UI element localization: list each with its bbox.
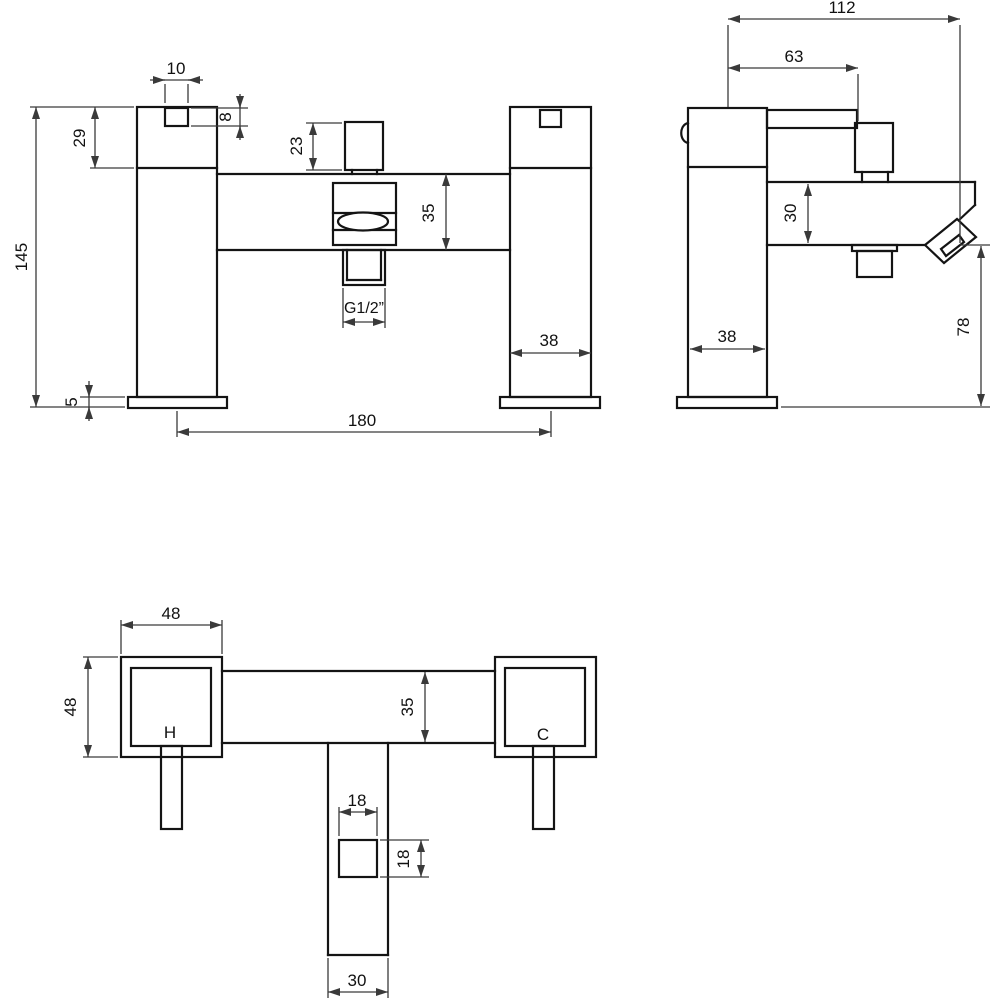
plan-view: H C 48 48 35 bbox=[61, 604, 596, 998]
side-handle-grip bbox=[855, 123, 893, 172]
front-left-pillar bbox=[137, 107, 217, 397]
dim-label-base-plate-height: 5 bbox=[62, 397, 81, 406]
dim-body-height: 35 bbox=[419, 174, 446, 250]
dim-label-body-depth-plan: 35 bbox=[398, 698, 417, 717]
dim-body-depth-side: 30 bbox=[781, 184, 808, 243]
side-view: 112 63 30 38 78 bbox=[677, 0, 990, 408]
dim-button-width: 10 bbox=[150, 59, 203, 103]
dim-label-button-height: 8 bbox=[216, 112, 235, 121]
front-left-handle-button bbox=[165, 108, 188, 126]
front-right-base-flange bbox=[500, 397, 600, 408]
dim-body-depth-plan: 35 bbox=[398, 672, 425, 742]
front-left-base-flange bbox=[128, 397, 227, 408]
dim-spout-block-width: 30 bbox=[328, 958, 388, 998]
dim-label-body-height: 35 bbox=[419, 204, 438, 223]
dim-label-tap-centres: 180 bbox=[348, 411, 376, 430]
dim-pillar-depth: 38 bbox=[690, 327, 765, 349]
front-view: 10 8 29 145 5 bbox=[12, 59, 600, 437]
dim-label-handle-depth: 48 bbox=[61, 698, 80, 717]
technical-drawing: 10 8 29 145 5 bbox=[0, 0, 1000, 1000]
plan-hot-handle-outer bbox=[121, 657, 222, 757]
technical-drawing-page: 10 8 29 145 5 bbox=[0, 0, 1000, 1000]
dim-label-body-depth-side: 30 bbox=[781, 204, 800, 223]
dim-handle-width: 48 bbox=[121, 604, 222, 654]
front-diverter-lever bbox=[345, 122, 383, 170]
plan-cold-label: C bbox=[537, 725, 549, 744]
plan-hot-lever bbox=[161, 746, 182, 829]
dim-label-overall-reach: 112 bbox=[828, 0, 855, 17]
dim-label-handle-width: 48 bbox=[162, 604, 181, 623]
dim-handle-depth: 48 bbox=[61, 657, 118, 757]
dim-label-handle-reach: 63 bbox=[785, 47, 804, 66]
dim-spout-outlet-height: 78 bbox=[781, 245, 990, 407]
side-handle-lever bbox=[767, 110, 857, 128]
dim-button-height: 8 bbox=[191, 94, 248, 140]
side-base-flange bbox=[677, 397, 777, 408]
dim-outlet-width: 18 bbox=[339, 791, 377, 836]
dim-label-pillar-width: 38 bbox=[540, 331, 559, 350]
front-diverter-knob bbox=[338, 213, 388, 231]
dim-label-diverter-lever-height: 23 bbox=[287, 137, 306, 156]
plan-outlet-square bbox=[339, 840, 377, 877]
dim-tap-centres: 180 bbox=[177, 411, 551, 437]
dim-label-spout-block-width: 30 bbox=[348, 971, 367, 990]
dim-label-outlet-thread: G1/2” bbox=[344, 300, 384, 317]
dim-label-outlet-width: 18 bbox=[348, 791, 367, 810]
dim-label-pillar-depth: 38 bbox=[718, 327, 737, 346]
dim-label-spout-outlet-height: 78 bbox=[954, 318, 973, 337]
dim-handle-height: 29 bbox=[70, 107, 134, 168]
dim-label-outlet-depth: 18 bbox=[394, 850, 413, 869]
dim-label-handle-height: 29 bbox=[70, 129, 89, 148]
dim-overall-height: 145 bbox=[12, 107, 134, 407]
dim-outlet-thread: G1/2” bbox=[343, 288, 385, 328]
dim-label-overall-height: 145 bbox=[12, 243, 31, 271]
dim-label-button-width: 10 bbox=[167, 59, 186, 78]
front-right-handle-button bbox=[540, 110, 561, 127]
plan-cold-lever bbox=[533, 746, 554, 829]
dim-base-plate-height: 5 bbox=[62, 381, 125, 421]
dim-diverter-lever-height: 23 bbox=[287, 123, 342, 170]
dim-pillar-width: 38 bbox=[510, 331, 591, 353]
dim-overall-reach: 112 bbox=[728, 0, 960, 243]
side-hose-nut bbox=[857, 251, 892, 277]
plan-hot-label: H bbox=[164, 723, 176, 742]
side-pillar bbox=[688, 108, 767, 397]
